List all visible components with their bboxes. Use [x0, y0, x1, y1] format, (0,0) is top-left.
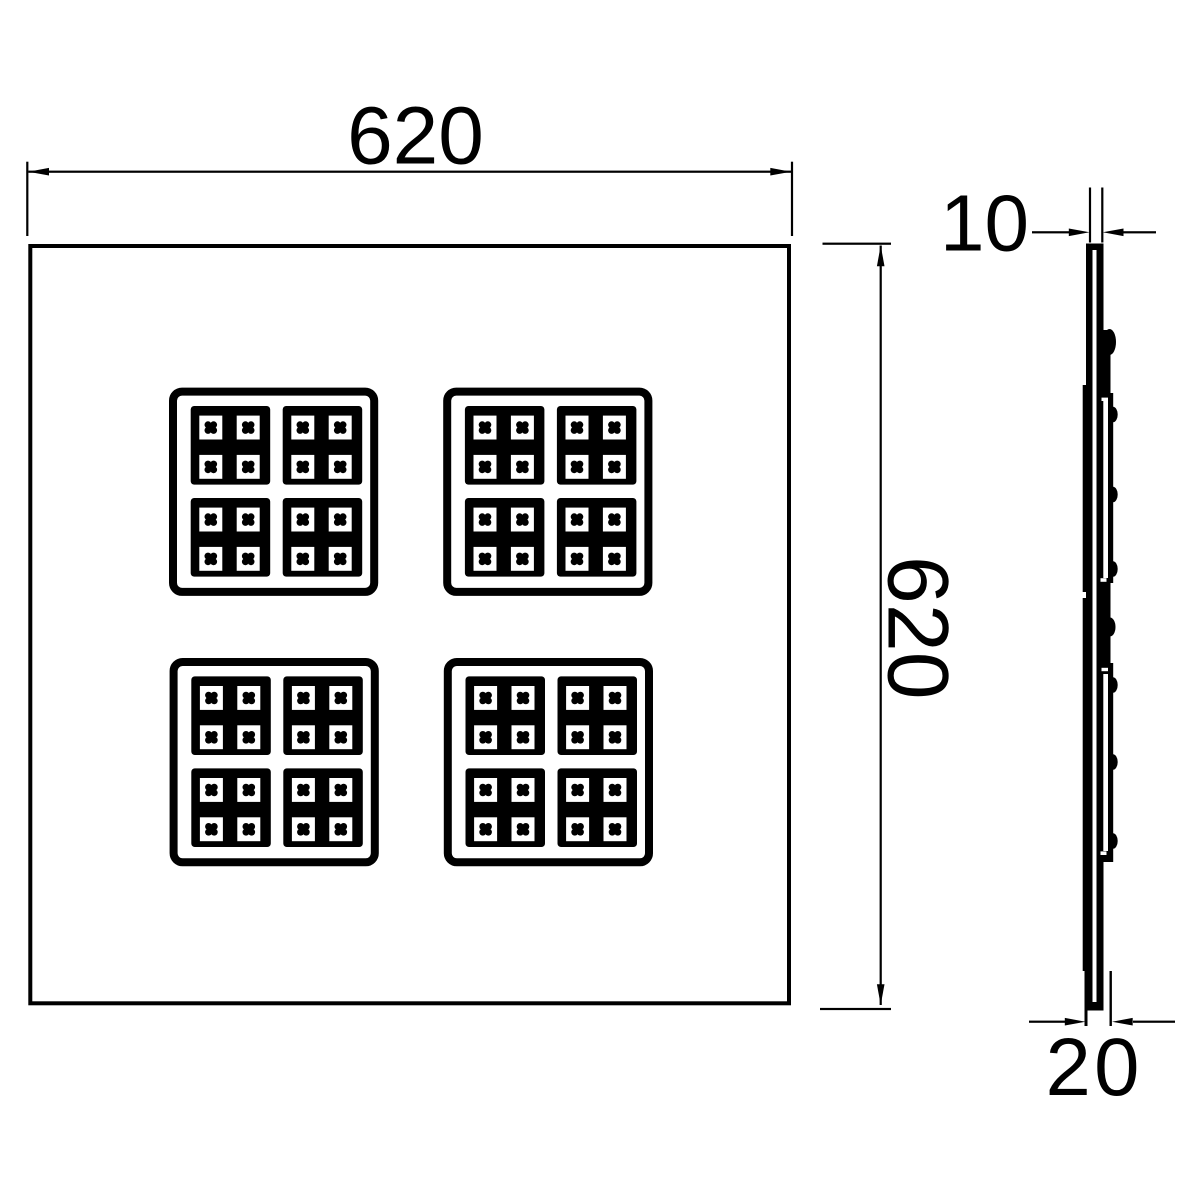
svg-text:10: 10: [940, 179, 1029, 268]
svg-text:620: 620: [347, 90, 484, 181]
svg-text:20: 20: [1046, 1022, 1140, 1113]
svg-text:620: 620: [870, 556, 966, 700]
